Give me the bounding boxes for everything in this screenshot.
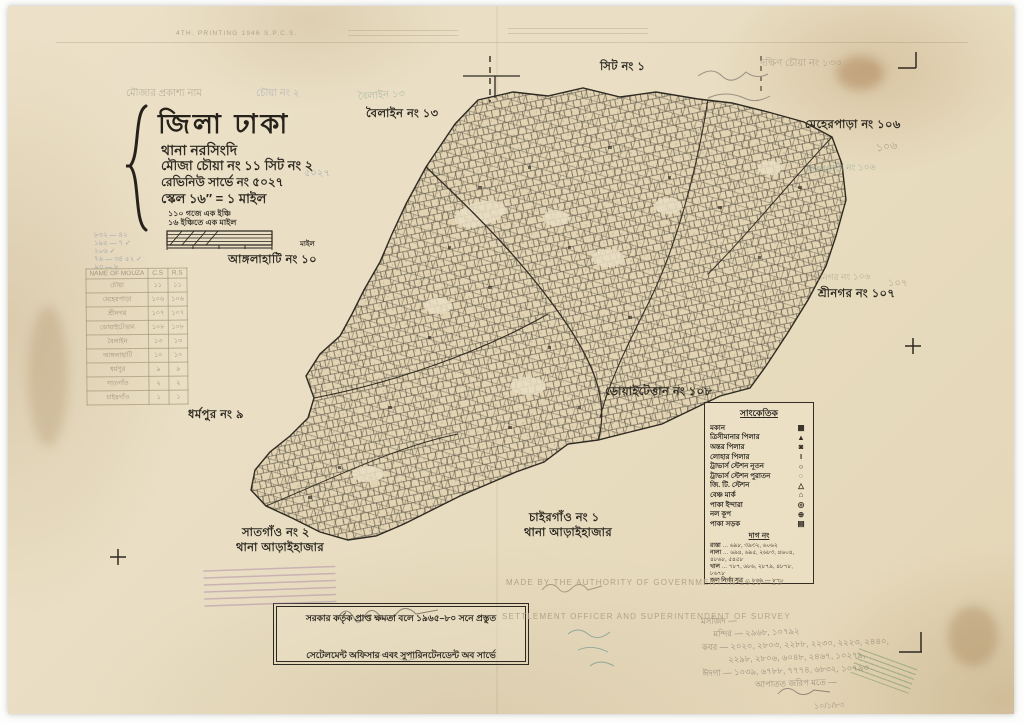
- trijunction-pillar-icon: ▲: [794, 433, 808, 442]
- mouza-name-header-note: মৌজার প্রকাশ্য নাম: [126, 86, 202, 103]
- label-satgaon-2: থানা আড়াইহাজার: [236, 539, 324, 558]
- survey-number-pencil: ৫০২৭: [304, 166, 330, 183]
- map-sheet-paper: মৌজার প্রকাশ্য নাম চৌয়া নং ২ জিলা ঢাকা …: [8, 6, 1014, 714]
- label-srinagar: শ্রীনগর নং ১০৭: [818, 285, 895, 304]
- masonry-well-icon: ◎: [794, 500, 808, 509]
- blue-note: ২০৬ ✓: [94, 248, 142, 256]
- legend-item: পাকা সড়ক▤: [710, 519, 808, 529]
- table-row: শ্রীনগর১০৭১০৭: [86, 306, 187, 321]
- scale-bar-unit: মাইল: [300, 238, 315, 250]
- plot-number-heading: দাগ নং: [710, 531, 808, 543]
- annotation-106: ১০৬: [875, 137, 899, 159]
- blue-note: ১৯৫ — ৭ ✓: [94, 240, 142, 248]
- blue-note: ৮৩২ — ৪২: [94, 232, 142, 240]
- label-chairgaon-2: থানা আড়াইহাজার: [524, 524, 612, 543]
- plot-row: নালা … ৬৯৪, ৬৯৫, ২৬৮৩, ৪৬০৪, ৪৮৬৮, ৫৪৫৮: [710, 550, 808, 564]
- label-boilain: বৈলাইন নং ১৩: [366, 105, 439, 124]
- table-row: মেহেরপাড়া১০৬১০৬: [86, 292, 187, 307]
- stamp-signature-space: [277, 626, 525, 648]
- purple-office-stamp: [203, 566, 336, 613]
- label-doaitettan: ডোয়াইটেত্তান নং ১০৮: [605, 383, 712, 402]
- table-row: ধর্মপুর৯৯: [87, 362, 188, 377]
- stamp-line-2: সেটেলমেন্ট অফিসার এবং সুপারিনটেনডেন্ট অব…: [277, 648, 525, 663]
- annotation-srinagar-pencil: শ্রীনগর নং ১০৬: [813, 269, 871, 286]
- legend-box: সাংকেতিক মকান▦ ত্রিসীমানার পিলার▲ অন্তর …: [704, 402, 814, 584]
- title-brace: [126, 104, 150, 234]
- bench-mark-icon: ⌂: [794, 490, 808, 499]
- traverse-station-old-icon: ◌: [794, 471, 808, 480]
- label-meherpara: মেহেরপাড়া নং ১০৬: [805, 116, 901, 135]
- blue-note: ৯৩ — ৮: [94, 264, 142, 272]
- annotation-top-right: দক্ষিণ চৌয়া নং ১৩৩: [760, 56, 841, 73]
- iron-pillar-icon: I: [794, 452, 808, 461]
- illegible-top-print: [348, 30, 458, 39]
- table-row: ডোয়াইটেত্তান১০৮১০৮: [86, 320, 187, 335]
- intermediate-pillar-icon: ◙: [794, 442, 808, 451]
- pencil-date: ১০/১/৮৩: [814, 699, 845, 714]
- traverse-station-new-icon: ○: [794, 462, 808, 471]
- table-header-c2: R.S: [167, 268, 187, 278]
- annotation-107: ১০৭: [888, 276, 908, 293]
- house-symbol-icon: ▦: [794, 423, 808, 432]
- table-row: সাতগাঁও২২: [87, 376, 188, 391]
- illegible-top-print: [508, 28, 648, 38]
- printing-imprint: 4TH. PRINTING 1946 S.P.C.S.: [176, 30, 298, 37]
- table-row: আঙ্গলাহাটি১০১০: [87, 348, 188, 363]
- mouza-name-header-value: চৌয়া নং ২: [256, 86, 299, 103]
- table-row: চাইরগাঁও১১: [87, 390, 188, 405]
- scanned-map-page: মৌজার প্রকাশ্য নাম চৌয়া নং ২ জিলা ঢাকা …: [0, 0, 1024, 723]
- annotation-meherpara-pencil: মেহেরপাড়া নং ১০৬: [804, 160, 876, 177]
- blue-note: ৭৬ — ৩৪ ৫২ ✓: [94, 256, 142, 264]
- label-angulahati: আঙ্গলাহাটি নং ১০: [228, 251, 317, 270]
- metalled-road-icon: ▤: [794, 519, 808, 528]
- blue-pencil-notes: ৮৩২ — ৪২ ১৯৫ — ৭ ✓ ২০৬ ✓ ৭৬ — ৩৪ ৫২ ✓ ৯৩…: [94, 232, 142, 272]
- label-dharmapur: ধর্মপুর নং ৯: [188, 406, 244, 425]
- table-row: চৌয়া১১১১: [86, 278, 187, 293]
- table-row: বৈলাইন১৩১৩: [86, 334, 187, 349]
- legend-heading: সাংকেতিক: [710, 406, 808, 421]
- plot-row: খাল … ৭৮৭, ৬৮৬, ২৮৭৯, ৪৮৭৮, ৮৬৭৮: [710, 564, 808, 578]
- table-header-c1: C.S: [148, 268, 168, 278]
- authority-stamp-box: সরকার কর্তৃক প্রাপ্ত ক্ষমতা বলে ১৯৬৫–৮০ …: [276, 606, 526, 662]
- gt-station-icon: △: [794, 481, 808, 490]
- made-by-imprint: MADE BY THE AUTHORITY OF GOVERNMENT IN 1…: [506, 578, 783, 587]
- tube-well-icon: ⊕: [794, 510, 808, 519]
- annotation-boilain-pencil: বৈলাইন ১৩: [357, 86, 405, 106]
- label-sheet-1: সিট নং ১: [600, 58, 645, 77]
- stamp-line-1: সরকার কর্তৃক প্রাপ্ত ক্ষমতা বলে ১৯৬৫–৮০ …: [277, 611, 525, 626]
- mouza-index-table: NAME OF MOUZA C.S R.S চৌয়া১১১১ মেহেরপাড…: [86, 268, 188, 405]
- plot-row: রাস্তা … ৬৯৮, ৩৯৩২, ৬০৬২: [710, 543, 808, 550]
